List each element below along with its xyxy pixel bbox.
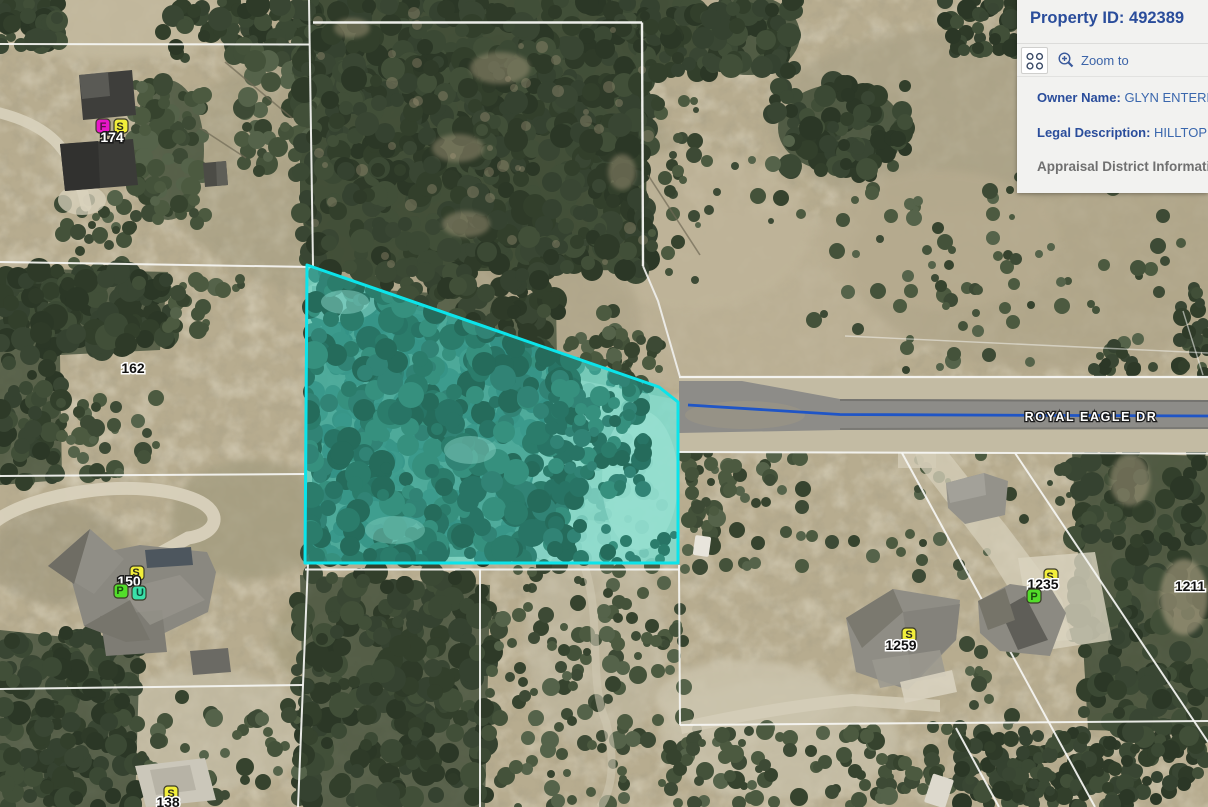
svg-text:ROYAL EAGLE DR: ROYAL EAGLE DR (1025, 410, 1158, 424)
svg-text:162: 162 (121, 360, 145, 376)
svg-text:1259: 1259 (885, 637, 916, 653)
svg-text:1211: 1211 (1175, 578, 1206, 594)
svg-text:U: U (136, 587, 144, 599)
svg-text:P: P (116, 585, 123, 597)
svg-text:138: 138 (156, 794, 180, 807)
svg-text:P: P (1030, 591, 1037, 603)
svg-text:174: 174 (100, 129, 124, 145)
